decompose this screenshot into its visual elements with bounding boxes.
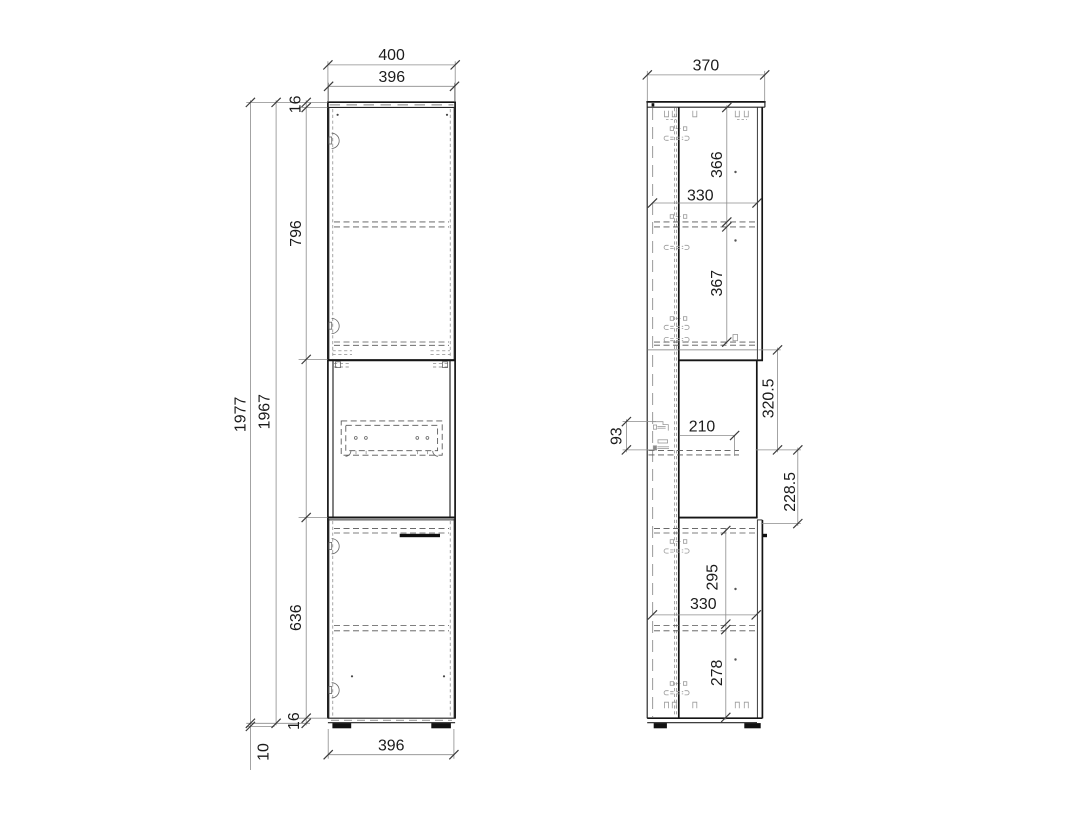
svg-text:400: 400 <box>378 47 405 64</box>
svg-text:396: 396 <box>378 738 405 755</box>
svg-text:370: 370 <box>693 57 720 74</box>
svg-text:330: 330 <box>690 596 717 613</box>
svg-text:210: 210 <box>689 419 716 436</box>
svg-text:228.5: 228.5 <box>782 472 799 512</box>
svg-text:330: 330 <box>687 188 714 205</box>
svg-text:1977: 1977 <box>232 397 249 433</box>
svg-text:295: 295 <box>705 564 722 591</box>
svg-text:320.5: 320.5 <box>760 378 777 418</box>
svg-text:796: 796 <box>288 220 305 247</box>
svg-text:93: 93 <box>608 427 625 445</box>
svg-text:367: 367 <box>709 270 726 297</box>
svg-text:396: 396 <box>379 69 406 86</box>
svg-text:1967: 1967 <box>257 394 274 430</box>
svg-text:366: 366 <box>709 151 726 178</box>
svg-text:278: 278 <box>709 659 726 686</box>
svg-text:636: 636 <box>288 604 305 631</box>
svg-text:10: 10 <box>256 743 273 761</box>
svg-text:16: 16 <box>286 712 303 730</box>
svg-text:16: 16 <box>287 95 304 113</box>
